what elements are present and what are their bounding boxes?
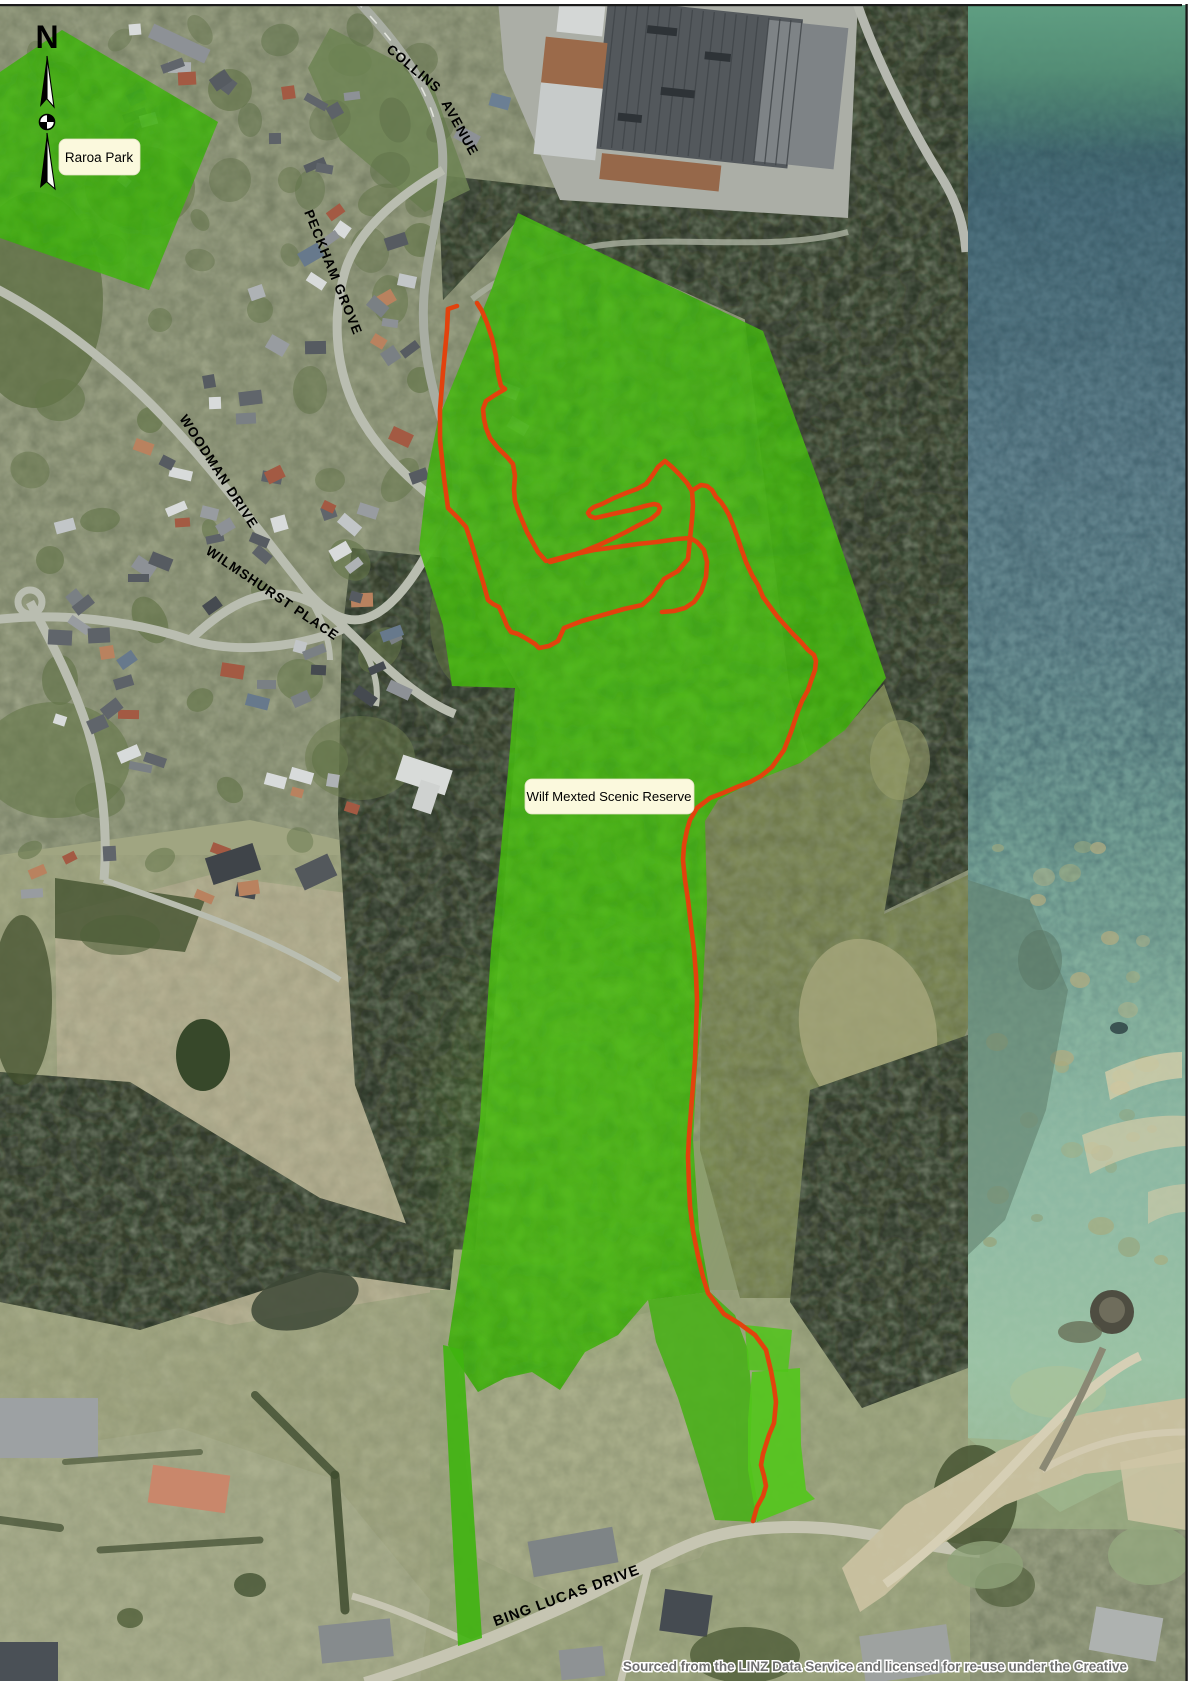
svg-text:Raroa Park: Raroa Park	[65, 150, 134, 165]
svg-text:N: N	[35, 19, 58, 55]
svg-text:Wilf Mexted Scenic Reserve: Wilf Mexted Scenic Reserve	[527, 789, 692, 804]
svg-text:Sourced from the LINZ Data Ser: Sourced from the LINZ Data Service and l…	[623, 1659, 1128, 1674]
